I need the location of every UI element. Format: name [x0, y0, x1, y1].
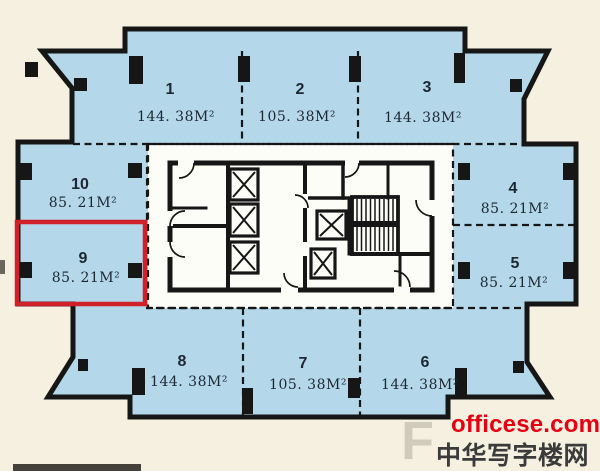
column	[563, 163, 575, 180]
unit-2-number: 2	[296, 81, 305, 99]
unit-10-area: 85. 21M²	[49, 195, 117, 211]
watermark-ghost-letter: F	[401, 410, 434, 471]
column	[510, 79, 522, 92]
column	[348, 378, 360, 398]
column	[132, 368, 145, 395]
column	[513, 361, 524, 373]
unit-4-area: 85. 21M²	[481, 201, 549, 217]
column	[20, 163, 32, 180]
unit-3-number: 3	[423, 79, 432, 97]
watermark-site-name: 中华写字楼网	[436, 436, 589, 471]
column	[129, 56, 143, 84]
unit-8-number: 8	[178, 353, 187, 371]
column	[458, 262, 470, 279]
scan-artifact-mark	[0, 260, 5, 274]
floor-plan-page: 1 144. 38M² 2 105. 38M² 3 144. 38M² 4 85…	[0, 0, 600, 471]
column	[78, 359, 88, 371]
column	[128, 163, 142, 178]
unit-4-number: 4	[509, 180, 518, 198]
stair-landing	[352, 221, 398, 227]
door-gap	[345, 160, 359, 167]
door-gap	[302, 242, 309, 256]
column	[238, 56, 250, 82]
column	[242, 388, 253, 414]
unit-10-number: 10	[71, 176, 89, 194]
unit-1-area: 144. 38M²	[137, 109, 215, 125]
unit-3-area: 144. 38M²	[384, 110, 462, 126]
unit-6-area: 144. 38M²	[381, 377, 459, 393]
unit-5-number: 5	[511, 255, 520, 273]
door-gap	[394, 287, 410, 294]
unit-5-area: 85. 21M²	[480, 275, 548, 291]
unit-7-area: 105. 38M²	[269, 377, 347, 393]
column	[563, 262, 575, 279]
watermark-site-url: officese.com	[451, 411, 600, 439]
column	[20, 262, 32, 278]
column	[458, 163, 470, 180]
unit-9-area: 85. 21M²	[52, 270, 120, 286]
unit-1-number: 1	[166, 81, 175, 99]
door-gap	[178, 160, 194, 167]
unit-2-area: 105. 38M²	[258, 109, 336, 125]
column	[454, 53, 465, 83]
floor-plan-svg	[0, 0, 600, 471]
unit-6-number: 6	[421, 354, 430, 372]
unit-8-area: 144. 38M²	[150, 374, 228, 390]
unit-9-number: 9	[79, 250, 88, 268]
scan-artifact-strip	[13, 464, 141, 471]
door-gap	[429, 200, 436, 216]
unit-7-number: 7	[299, 355, 308, 373]
column	[25, 62, 38, 77]
column	[349, 56, 361, 82]
column	[128, 263, 142, 278]
column	[74, 78, 87, 91]
